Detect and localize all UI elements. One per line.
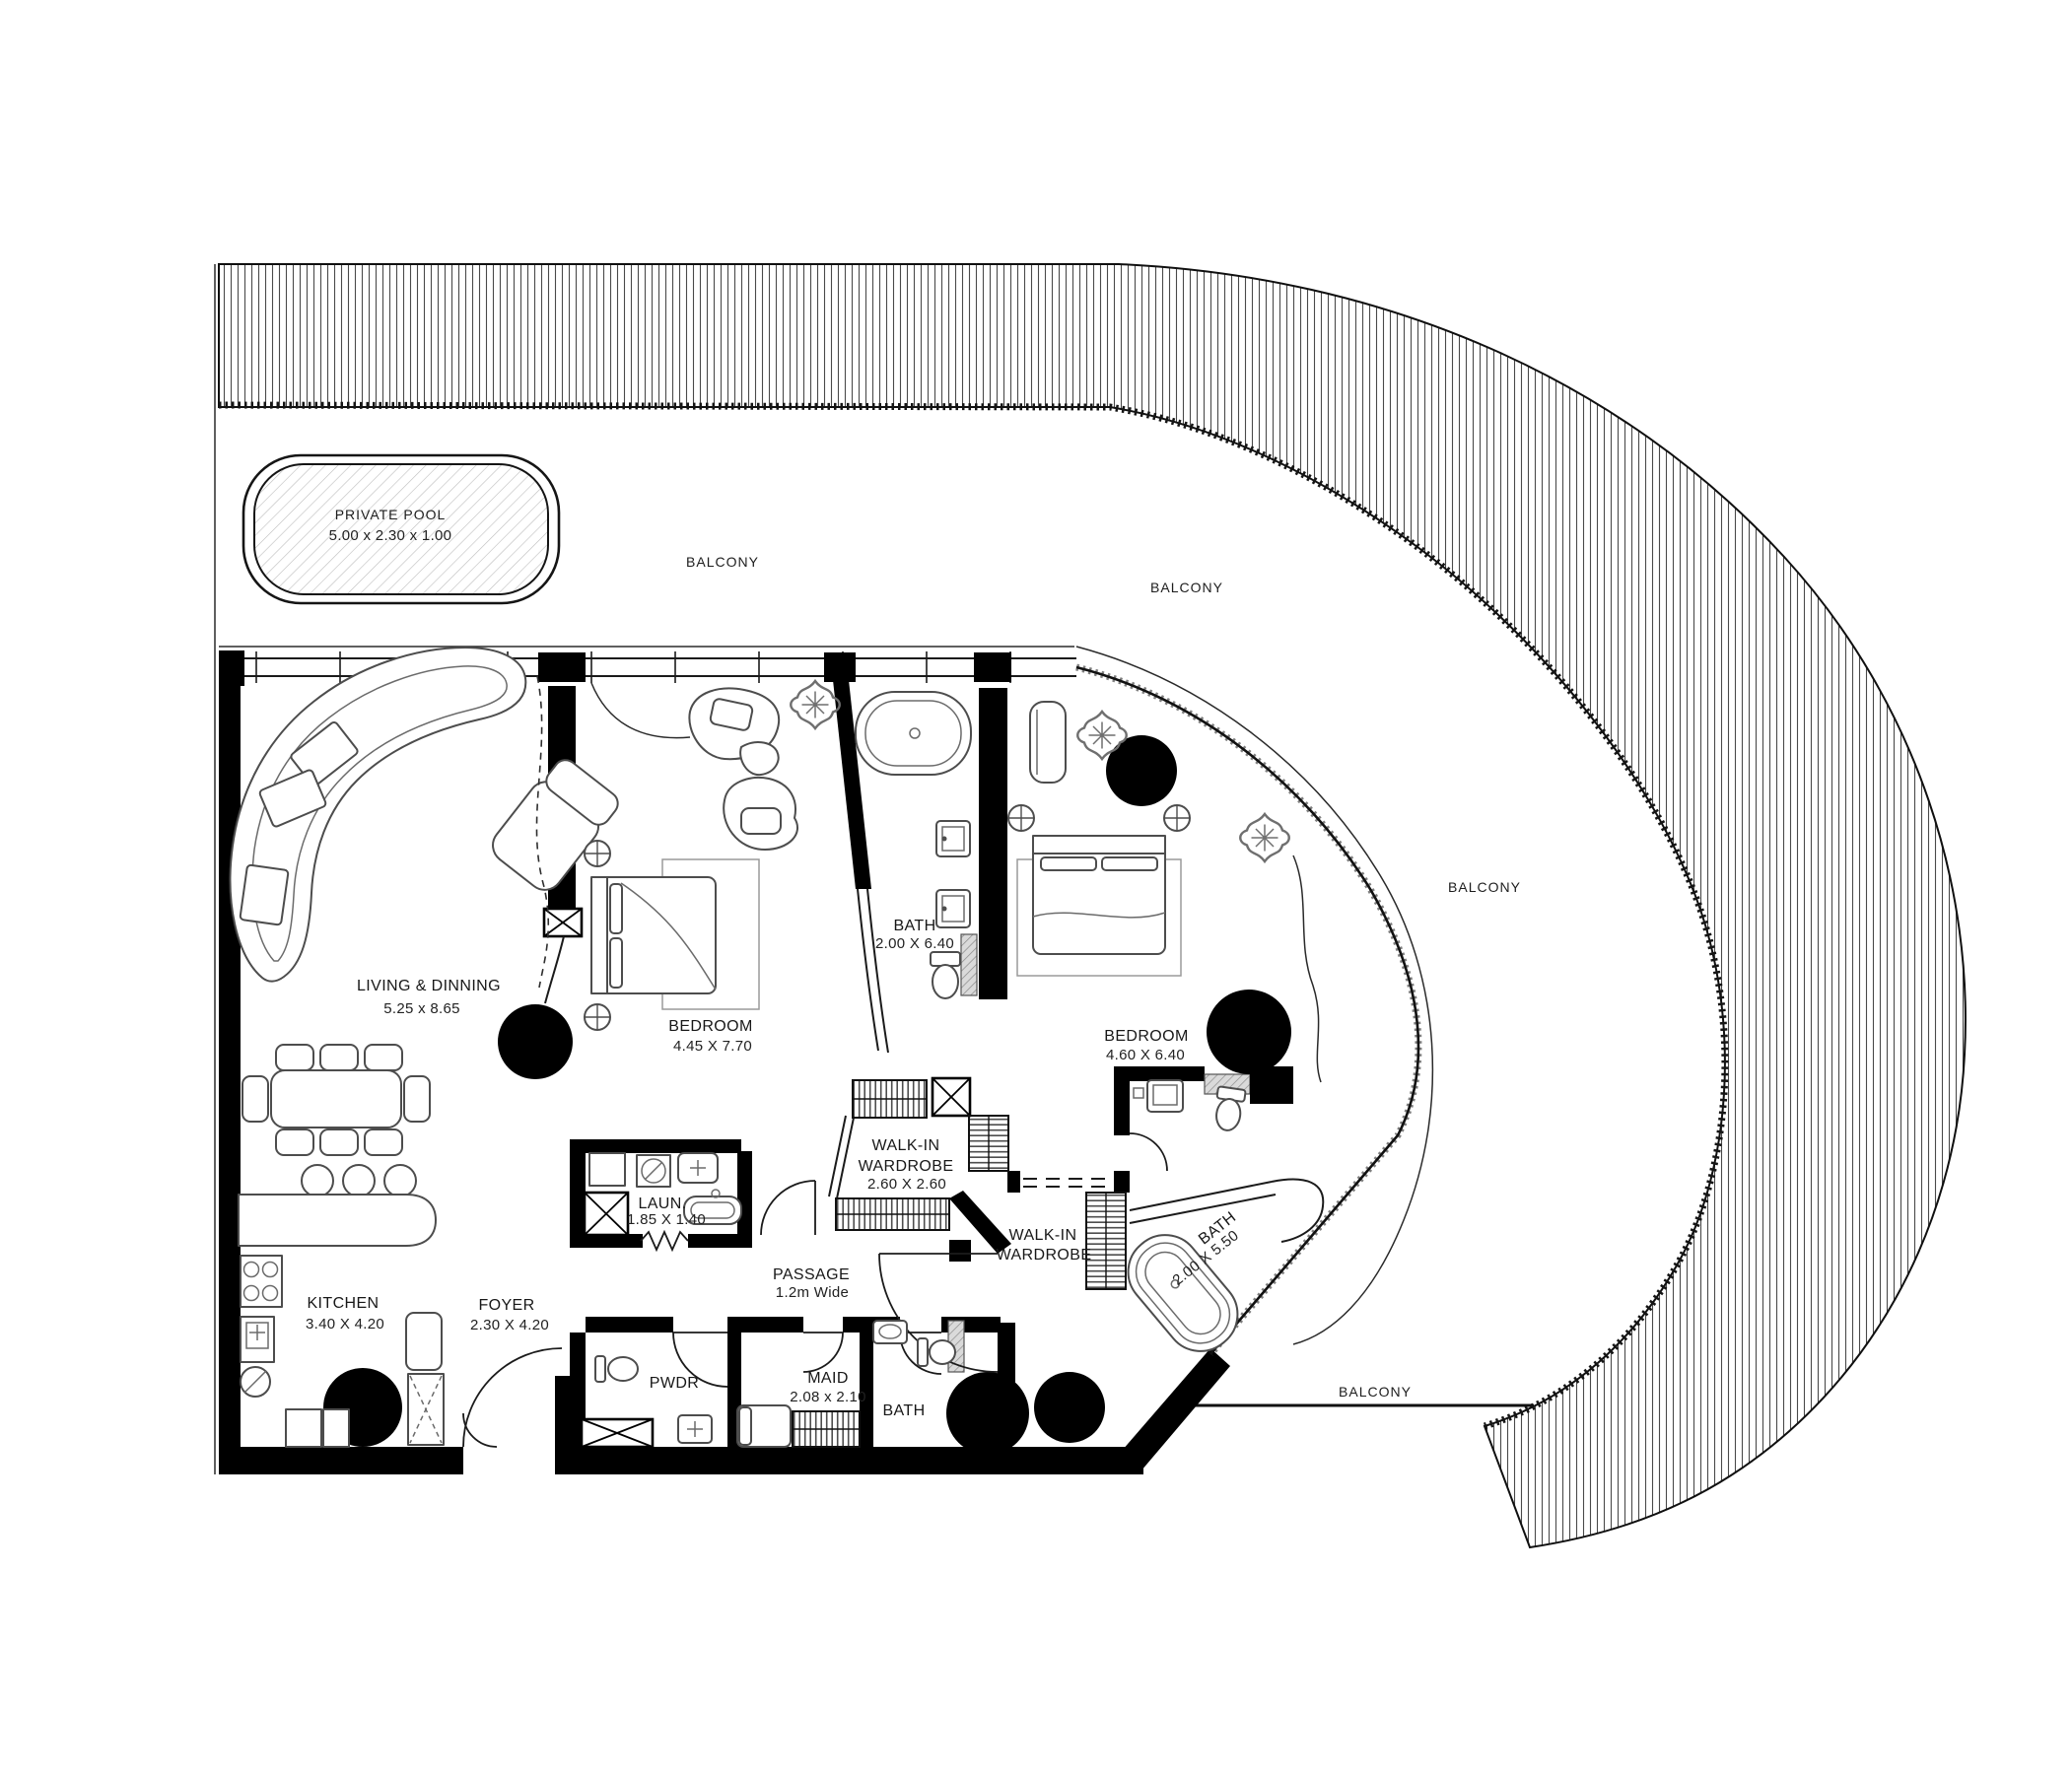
foyer-dims: 2.30 X 4.20 (470, 1317, 549, 1333)
passage-label: PASSAGE (773, 1266, 850, 1283)
toilet (608, 1357, 638, 1381)
toilet (1212, 1086, 1246, 1131)
living-dims: 5.25 x 8.65 (383, 1000, 460, 1017)
column (1034, 1372, 1105, 1443)
walkin1-label-2: WARDROBE (859, 1158, 954, 1175)
bath1-fixtures (856, 692, 971, 998)
pool-label: PRIVATE POOL (335, 507, 447, 522)
private-pool: PRIVATE POOL 5.00 x 2.30 x 1.00 (243, 455, 559, 603)
balcony-label-right: BALCONY (1448, 879, 1521, 895)
nightstand-lamp (585, 841, 610, 866)
column (1106, 735, 1177, 806)
accordion-door (641, 1232, 688, 1250)
bedroom2-dims: 4.60 X 6.40 (1106, 1047, 1185, 1063)
entrance-door-arc (463, 1348, 562, 1447)
dining-table (271, 1070, 401, 1128)
floor-plan-drawing: PRIVATE POOL 5.00 x 2.30 x 1.00 BALCONY … (0, 0, 2072, 1777)
curtain-swag (591, 683, 690, 738)
walkin2-label-1: WALK-IN (1009, 1227, 1077, 1244)
balcony-label-top-right: BALCONY (1150, 580, 1223, 595)
dining-set (242, 1045, 430, 1155)
foyer-label: FOYER (478, 1297, 534, 1314)
nightstand-lamp (1008, 805, 1034, 831)
diagonal-wall (1122, 1348, 1230, 1470)
armchair (486, 753, 623, 897)
breakfast-bar (239, 1165, 436, 1246)
laundry-label: LAUN. (638, 1196, 686, 1212)
maid-bath-label: BATH (882, 1402, 925, 1419)
nightstand-lamp (585, 1004, 610, 1030)
nightstand-lamp (1164, 805, 1190, 831)
living-label: LIVING & DINNING (357, 978, 501, 994)
bedroom2-label: BEDROOM (1104, 1028, 1188, 1045)
toilet (930, 1340, 955, 1364)
curtain-line (1293, 855, 1321, 1082)
kitchen-label: KITCHEN (307, 1295, 379, 1312)
walkin2-label-2: WARDROBE (997, 1247, 1092, 1264)
fridge (286, 1409, 321, 1447)
chaise (1030, 702, 1066, 783)
pouf (740, 742, 778, 775)
bedroom1-furniture (585, 681, 840, 1030)
column (498, 1004, 573, 1079)
bath1-label: BATH (893, 918, 935, 934)
bedroom1-label: BEDROOM (668, 1018, 752, 1035)
maid-dims: 2.08 x 2.10 (790, 1389, 866, 1405)
laundry-dims: 1.85 X 1.40 (627, 1211, 706, 1228)
bath1-dims: 2.00 X 6.40 (875, 935, 954, 952)
column (1207, 990, 1291, 1074)
kitchen-fixtures (241, 1256, 444, 1447)
walkin1-label-1: WALK-IN (872, 1137, 940, 1154)
balcony-label-top-left: BALCONY (686, 554, 759, 570)
pool-dims: 5.00 x 2.30 x 1.00 (329, 527, 452, 544)
passage-dims: 1.2m Wide (776, 1284, 849, 1301)
walkin1-dims: 2.60 X 2.60 (867, 1176, 946, 1193)
plant-icon (791, 681, 840, 728)
pwdr-fixtures (582, 1356, 712, 1447)
balcony-label-bottom: BALCONY (1339, 1384, 1412, 1400)
plant-icon (1240, 814, 1289, 861)
column (946, 1372, 1029, 1455)
left-wall (219, 652, 241, 1474)
entrance-jamb (555, 1376, 570, 1447)
kitchen-dims: 3.40 X 4.20 (306, 1316, 384, 1333)
floor-plan-page: PRIVATE POOL 5.00 x 2.30 x 1.00 BALCONY … (0, 0, 2072, 1777)
bathtub (856, 692, 971, 775)
bedroom1-dims: 4.45 X 7.70 (673, 1038, 752, 1055)
pwdr-label: PWDR (650, 1375, 699, 1392)
toilet (931, 952, 960, 966)
room-labels: LIVING & DINNING 5.25 x 8.65 BEDROOM 4.4… (306, 918, 1242, 1419)
maid-label: MAID (807, 1370, 849, 1387)
